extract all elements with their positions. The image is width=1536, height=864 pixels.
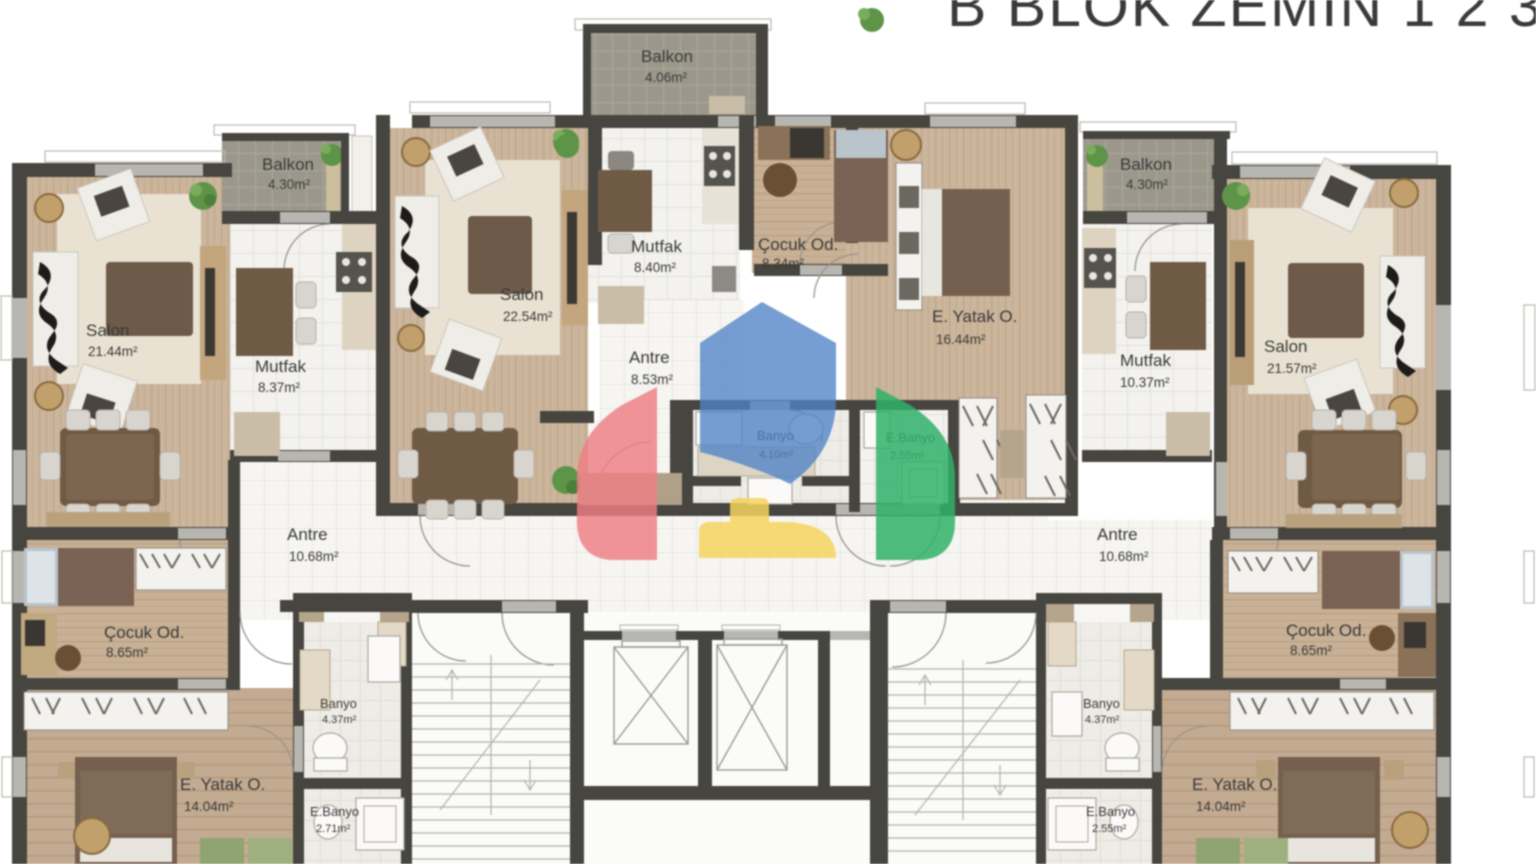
svg-text:Çocuk Od.: Çocuk Od.: [1286, 621, 1366, 640]
svg-text:E. Yatak O.: E. Yatak O.: [932, 307, 1017, 326]
svg-text:8.53m²: 8.53m²: [631, 372, 674, 387]
svg-text:2.55m²: 2.55m²: [1092, 823, 1127, 835]
svg-text:21.44m²: 21.44m²: [88, 344, 138, 359]
svg-text:Balkon: Balkon: [641, 47, 693, 66]
svg-text:Çocuk Od.: Çocuk Od.: [104, 623, 184, 642]
svg-text:14.04m²: 14.04m²: [1196, 799, 1246, 814]
svg-text:B BLOK ZEMİN 1 2 3: B BLOK ZEMİN 1 2 3: [947, 0, 1536, 39]
svg-text:Antre: Antre: [1097, 525, 1138, 544]
svg-text:8.37m²: 8.37m²: [258, 380, 301, 395]
svg-text:E.Banyo: E.Banyo: [310, 804, 359, 819]
svg-text:Mutfak: Mutfak: [1120, 351, 1172, 370]
svg-text:22.54m²: 22.54m²: [503, 309, 553, 324]
svg-text:4.30m²: 4.30m²: [268, 177, 311, 192]
svg-text:21.57m²: 21.57m²: [1267, 361, 1317, 376]
svg-text:Salon: Salon: [1264, 337, 1307, 356]
svg-text:8.65m²: 8.65m²: [106, 645, 149, 660]
svg-text:Banyo: Banyo: [1083, 696, 1120, 711]
svg-text:10.37m²: 10.37m²: [1120, 375, 1170, 390]
svg-text:Salon: Salon: [500, 285, 543, 304]
svg-text:10.68m²: 10.68m²: [1099, 549, 1149, 564]
svg-text:8.65m²: 8.65m²: [1290, 643, 1333, 658]
svg-text:4.06m²: 4.06m²: [645, 70, 688, 85]
svg-text:Banyo: Banyo: [320, 696, 357, 711]
svg-text:8.40m²: 8.40m²: [634, 260, 677, 275]
svg-text:E. Yatak O.: E. Yatak O.: [180, 775, 265, 794]
svg-text:Antre: Antre: [629, 348, 670, 367]
svg-text:10.68m²: 10.68m²: [289, 549, 339, 564]
svg-text:E.Banyo: E.Banyo: [1086, 804, 1135, 819]
svg-text:Salon: Salon: [86, 321, 129, 340]
svg-text:2.71m²: 2.71m²: [316, 823, 351, 835]
svg-text:E. Yatak O.: E. Yatak O.: [1192, 775, 1277, 794]
svg-text:8.34m²: 8.34m²: [762, 256, 805, 271]
svg-text:16.44m²: 16.44m²: [936, 332, 986, 347]
svg-text:Antre: Antre: [287, 525, 328, 544]
svg-text:14.04m²: 14.04m²: [184, 799, 234, 814]
svg-text:4.37m²: 4.37m²: [1085, 714, 1120, 726]
svg-text:4.37m²: 4.37m²: [322, 714, 357, 726]
svg-text:Mutfak: Mutfak: [255, 357, 307, 376]
svg-text:Mutfak: Mutfak: [631, 237, 683, 256]
svg-text:Çocuk Od.: Çocuk Od.: [758, 235, 838, 254]
svg-text:4.30m²: 4.30m²: [1126, 177, 1169, 192]
svg-text:Balkon: Balkon: [1120, 155, 1172, 174]
svg-text:Balkon: Balkon: [262, 155, 314, 174]
